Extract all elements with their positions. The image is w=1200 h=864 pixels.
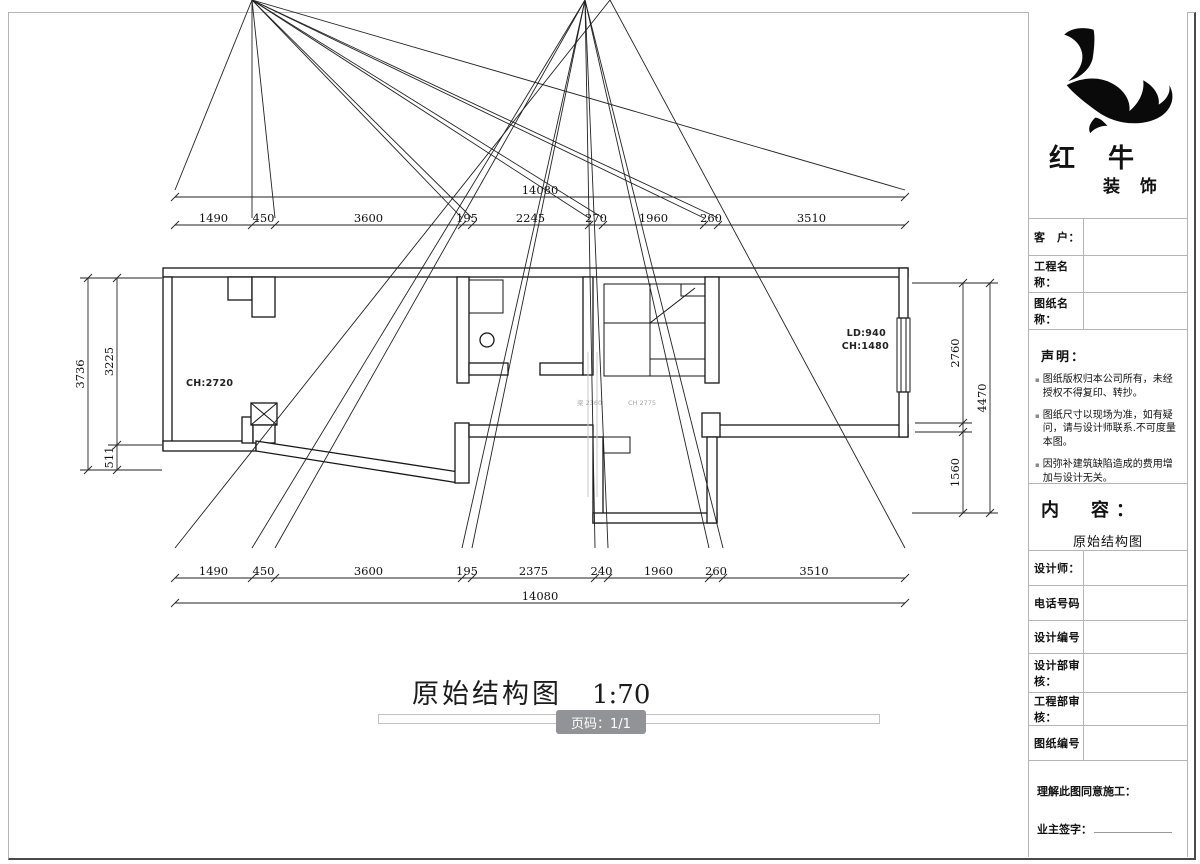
content-value: 原始结构图: [1029, 531, 1187, 550]
brand-suffix: 装 饰: [1103, 172, 1164, 197]
field-label: 工程部审核：: [1029, 693, 1083, 725]
field-row-design-no: 设计编号: [1029, 620, 1187, 653]
owner-sign-label: 业主签字：: [1037, 823, 1092, 836]
shower-box: [469, 280, 503, 313]
wall-diagonal: [256, 441, 459, 483]
drawing-title: 原始结构图: [412, 679, 562, 710]
field-label: 图纸编号: [1029, 726, 1083, 760]
wall-top: [163, 268, 908, 277]
pier-top-left-a: [228, 277, 252, 300]
field-value: [1083, 551, 1187, 585]
dimension-label: 450: [253, 564, 275, 578]
field-value: [1083, 256, 1187, 292]
bullet-icon: ▪: [1035, 461, 1040, 486]
field-value: [1083, 654, 1187, 692]
wall-right-room-bottom: [718, 425, 908, 437]
field-value: [1083, 621, 1187, 653]
bullet-icon: ▪: [1035, 412, 1040, 450]
dimension-label: 260: [705, 564, 727, 578]
dimension-label: 3510: [797, 211, 826, 225]
statement-item: 因弥补建筑缺陷造成的费用增加与设计无关。: [1043, 458, 1181, 486]
beam-note: CH 2775: [628, 399, 656, 407]
field-row-designer: 设计师：: [1029, 550, 1187, 585]
dimension-label: 195: [456, 564, 478, 578]
dimension-label: 450: [253, 211, 275, 225]
dimension-annotations: 1408014904503600195224527019602603510149…: [73, 0, 998, 607]
wall-bathroom-left: [457, 277, 469, 383]
field-label: 客 户：: [1029, 219, 1083, 255]
field-value: [1083, 586, 1187, 620]
room-label-ceiling-height: CH:2720: [186, 378, 233, 389]
field-label: 图纸名称：: [1029, 293, 1083, 329]
wall-bay-bottom: [593, 513, 717, 523]
pier-right-room: [702, 413, 720, 437]
wall-bay-right: [707, 437, 717, 523]
content-section: 内 容： 原始结构图: [1029, 483, 1187, 550]
dimension-label: 1490: [199, 211, 228, 225]
field-label: 设计编号: [1029, 621, 1083, 653]
field-value: [1083, 726, 1187, 760]
page-number-badge: 页码：1/1: [556, 710, 646, 734]
wall-right-bottom: [899, 392, 908, 437]
dimension-label: 2760: [948, 338, 962, 367]
field-row-design-review: 设计部审核：: [1029, 653, 1187, 692]
dimension-label: 3510: [799, 564, 828, 578]
field-row-customer: 客 户：: [1029, 218, 1187, 255]
field-row-sheet-no: 图纸编号: [1029, 725, 1187, 760]
dimension-label: 511: [102, 447, 116, 469]
field-row-project-name: 工程名称：: [1029, 255, 1187, 292]
statement-heading: 声明：: [1029, 330, 1187, 365]
field-value: [1083, 219, 1187, 255]
dimension-label: 2375: [519, 564, 548, 578]
dimension-label: 1960: [639, 211, 668, 225]
drawing-canvas: CH:2720 LD:940 CH:1480 梁 2360 CH 2775 14…: [0, 0, 1200, 864]
signature-line: [1094, 822, 1172, 833]
bullet-icon: ▪: [1035, 376, 1040, 401]
field-label: 电话号码: [1029, 586, 1083, 620]
field-value: [1083, 293, 1187, 329]
title-block: 红 牛 装 饰 客 户： 工程名称： 图纸名称： 声明： ▪ 图纸版权归本公司所…: [1028, 12, 1188, 857]
signature-section: 理解此图同意施工： 业主签字：: [1029, 760, 1187, 857]
field-value: [1083, 693, 1187, 725]
statement-item: 图纸版权归本公司所有，未经授权不得复印、转抄。: [1043, 373, 1181, 401]
field-label: 设计师：: [1029, 551, 1083, 585]
dimension-label: 240: [591, 564, 613, 578]
wall-left: [163, 277, 172, 450]
wall-stair-right: [705, 277, 719, 383]
dimension-label: 3600: [354, 564, 383, 578]
dimension-label: 3225: [102, 347, 116, 376]
content-heading: 内 容：: [1029, 484, 1187, 522]
beam-note: 梁 2360: [577, 398, 602, 407]
brand-logo-cell: 红 牛 装 饰: [1029, 12, 1187, 218]
dimension-label: 1490: [199, 564, 228, 578]
floor-drain: [480, 333, 494, 347]
field-label: 工程名称：: [1029, 256, 1083, 292]
agree-label: 理解此图同意施工：: [1037, 783, 1187, 799]
field-row-phone: 电话号码: [1029, 585, 1187, 620]
staircase: [604, 284, 707, 376]
wall-right-top: [899, 268, 908, 318]
dimension-label: 3736: [73, 359, 87, 388]
wall-bathroom-bottom-right: [540, 363, 583, 375]
dimension-label: 14080: [522, 589, 559, 603]
dimension-label: 1560: [948, 458, 962, 487]
bull-logo-icon: [1043, 20, 1175, 138]
room-label-ch: CH:1480: [842, 341, 889, 352]
room-label-ld: LD:940: [847, 328, 886, 339]
field-row-engineering-review: 工程部审核：: [1029, 692, 1187, 725]
column-stub: [253, 425, 275, 443]
bay-notch: [603, 437, 630, 453]
drawing-scale: 1:70: [592, 680, 650, 710]
pier-top-left-b: [252, 277, 275, 317]
statement-section: 声明： ▪ 图纸版权归本公司所有，未经授权不得复印、转抄。 ▪ 图纸尺寸以现场为…: [1029, 329, 1187, 483]
field-row-sheet-name: 图纸名称：: [1029, 292, 1187, 329]
brand-name: 红 牛: [1049, 138, 1146, 175]
field-label: 设计部审核：: [1029, 654, 1083, 692]
window: [897, 318, 910, 392]
statement-item: 图纸尺寸以现场为准，如有疑问，请与设计师联系.不可度量本图。: [1043, 409, 1181, 450]
floor-plan-walls: [163, 268, 910, 523]
pier-diagonal-end: [455, 423, 469, 483]
dimension-label: 1960: [644, 564, 673, 578]
dimension-label: 3600: [354, 211, 383, 225]
dimension-label: 4470: [975, 383, 989, 412]
